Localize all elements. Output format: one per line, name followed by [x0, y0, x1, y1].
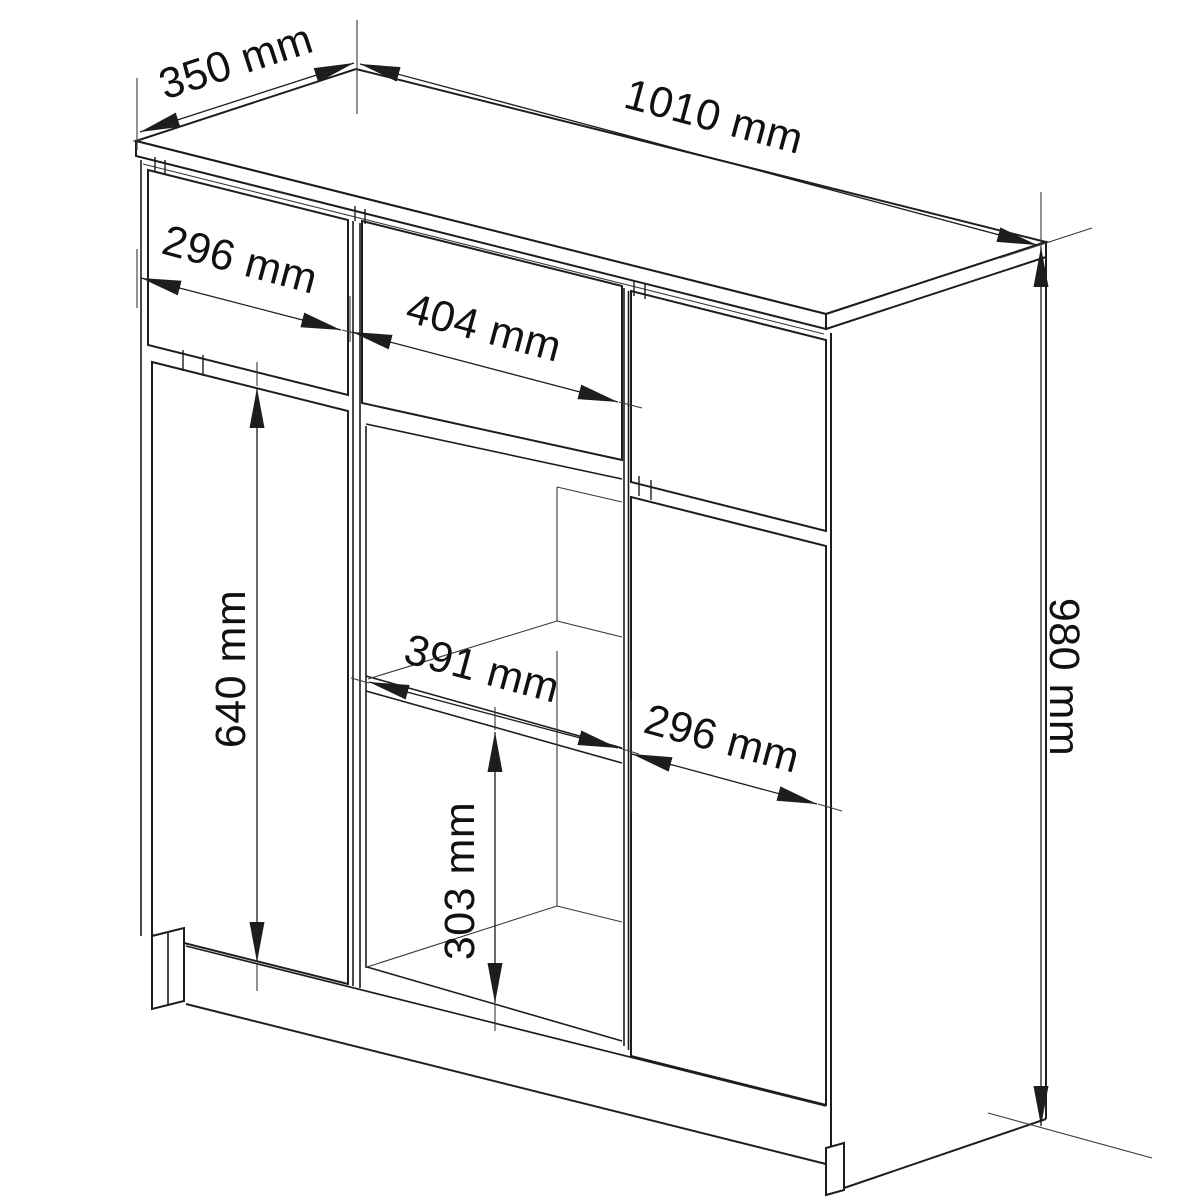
- cabinet-drawing: [136, 69, 1046, 1195]
- furniture-dimension-diagram: 350 mm 1010 mm 296 mm 404 mm: [0, 0, 1200, 1200]
- right-panel-bottom-edge: [844, 1119, 1046, 1188]
- dim-niche-width-label: 391 mm: [399, 625, 564, 712]
- niche-floor-back-edge: [557, 906, 622, 922]
- shelf-thickness-edge: [366, 691, 622, 763]
- right-door: [631, 497, 826, 1105]
- dim-left-door-height-label: 640 mm: [207, 590, 255, 748]
- shelf-back-edge: [557, 621, 622, 637]
- dim-total-height-label: 980 mm: [1040, 598, 1088, 756]
- dim-lower-compartment-height: 303 mm: [436, 707, 495, 1031]
- front-right-leg: [826, 1143, 844, 1195]
- dim-lower-compartment-height-label: 303 mm: [436, 802, 484, 960]
- dimension-diagram-page: 350 mm 1010 mm 296 mm 404 mm: [0, 0, 1200, 1200]
- dim-total-height: 980 mm: [988, 247, 1152, 1158]
- niche-ceiling-back-edge: [557, 487, 622, 502]
